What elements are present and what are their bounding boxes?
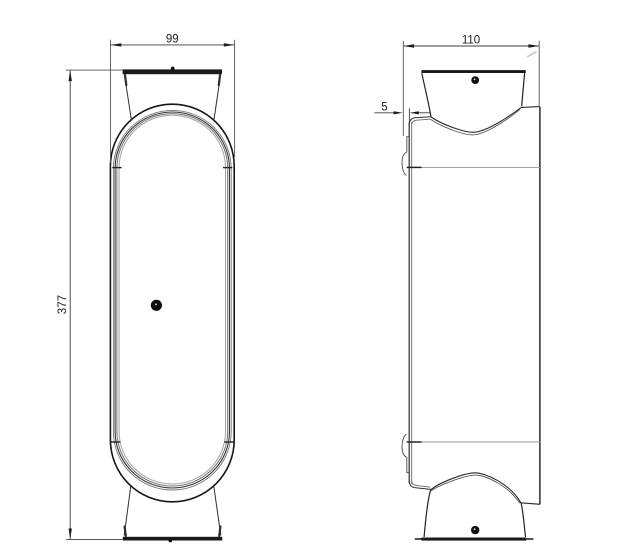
svg-text:99: 99: [166, 33, 179, 45]
svg-text:377: 377: [57, 295, 69, 314]
svg-text:110: 110: [462, 34, 480, 46]
svg-text:5: 5: [381, 101, 387, 113]
